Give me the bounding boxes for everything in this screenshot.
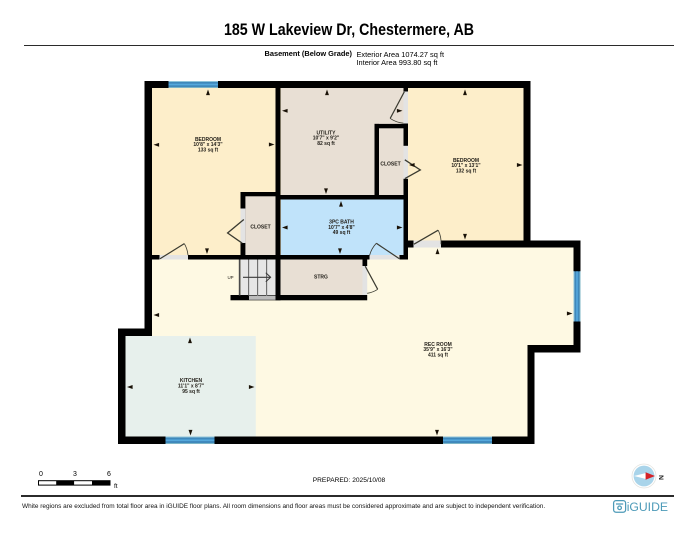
svg-text:132 sq ft: 132 sq ft <box>456 168 477 174</box>
svg-text:133 sq ft: 133 sq ft <box>198 147 219 153</box>
svg-text:N: N <box>657 475 664 480</box>
svg-text:95 sq ft: 95 sq ft <box>182 389 200 395</box>
svg-text:iGUIDE: iGUIDE <box>627 500 668 514</box>
svg-text:STRG: STRG <box>314 275 328 281</box>
svg-text:82 sq ft: 82 sq ft <box>317 141 335 147</box>
svg-text:49 sq ft: 49 sq ft <box>333 230 351 236</box>
svg-text:CLOSET: CLOSET <box>250 225 270 231</box>
svg-text:411 sq ft: 411 sq ft <box>428 353 448 359</box>
svg-text:UP: UP <box>227 275 233 280</box>
svg-text:CLOSET: CLOSET <box>380 162 400 168</box>
